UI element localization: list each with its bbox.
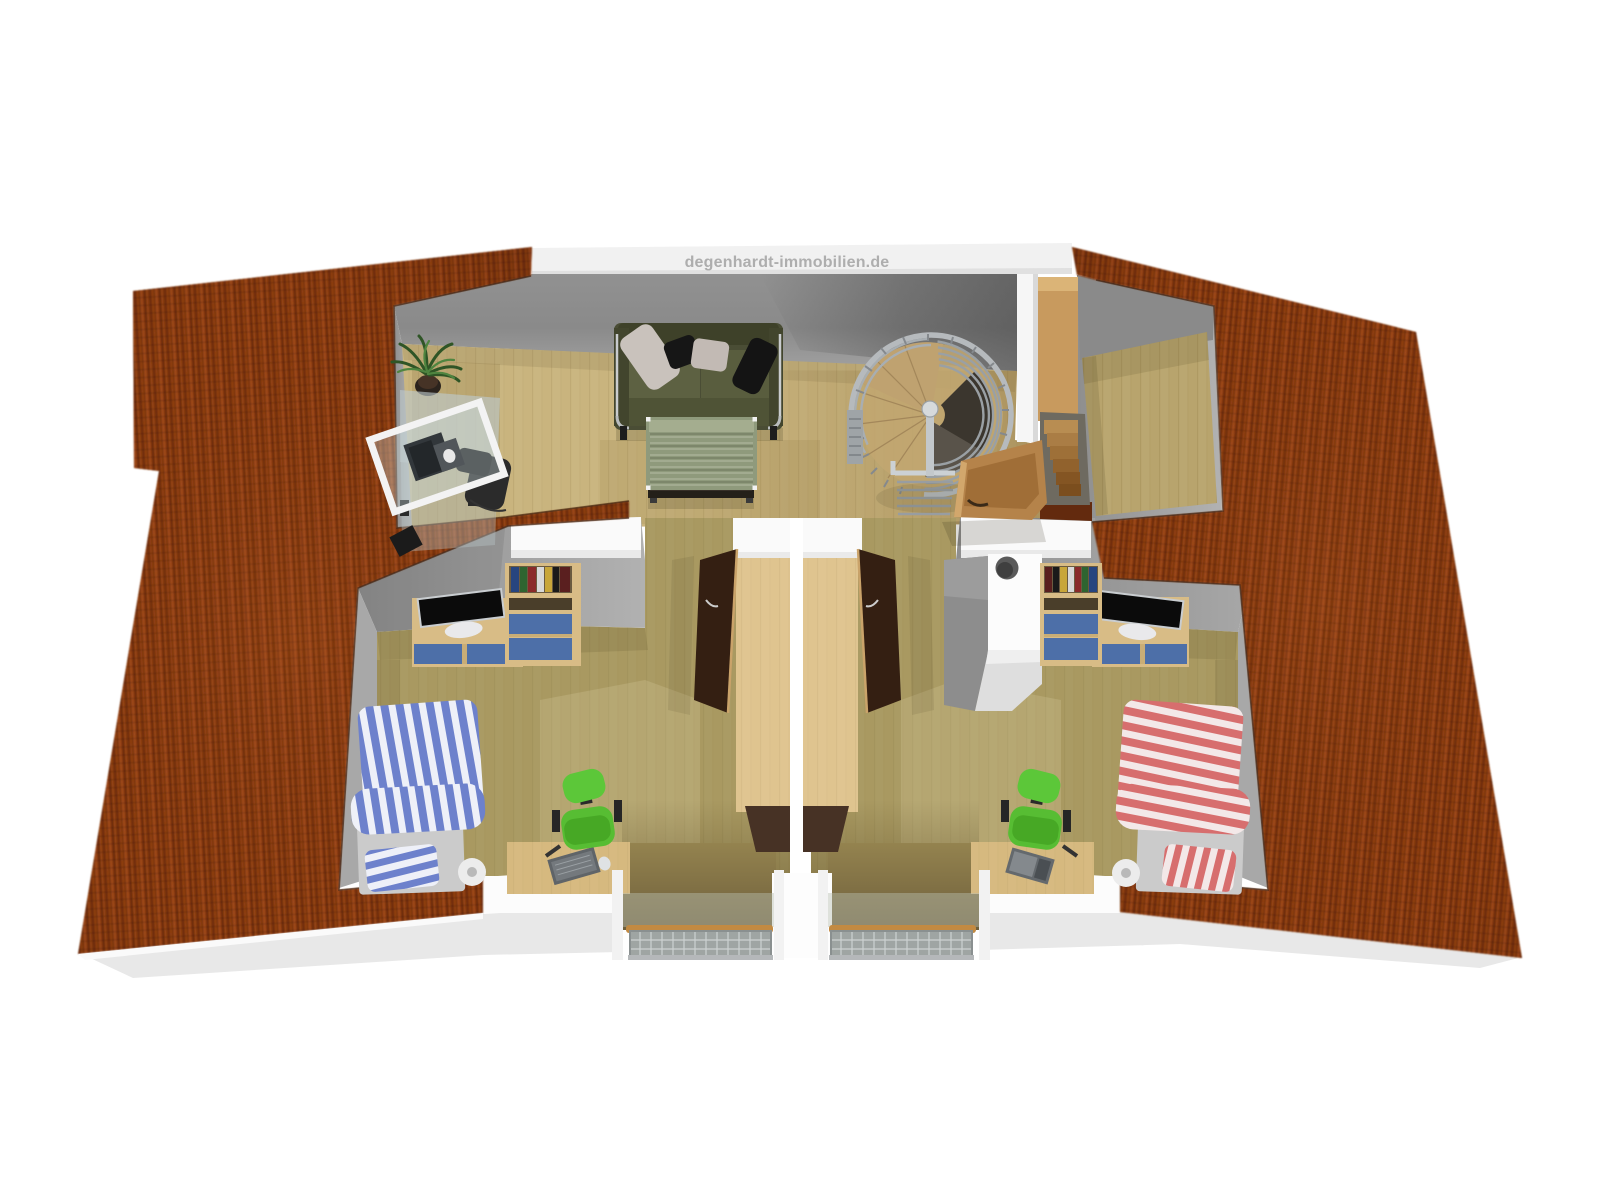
svg-text:degenhardt-immobilien.de: degenhardt-immobilien.de [685,254,890,271]
